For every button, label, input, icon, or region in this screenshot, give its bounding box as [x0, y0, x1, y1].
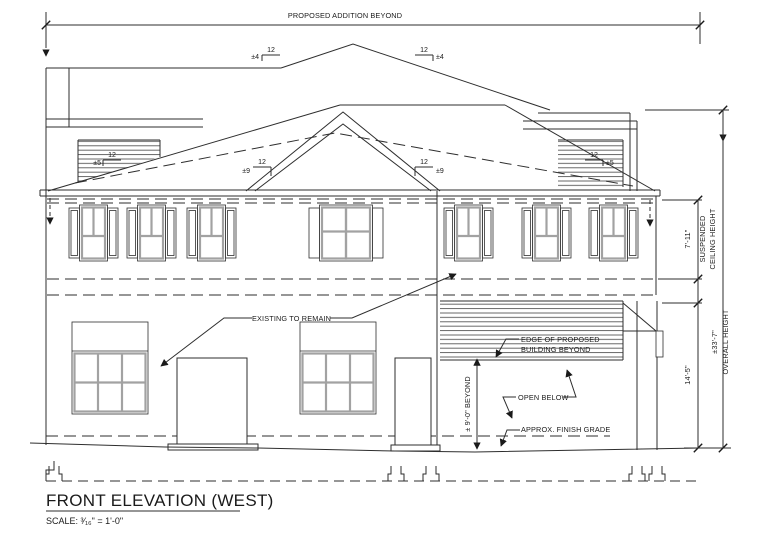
window-second-floor-4	[444, 205, 493, 261]
slope-rise-label: 12	[258, 159, 266, 166]
proposed-addition-label: PROPOSED ADDITION BEYOND	[288, 11, 402, 20]
window-second-floor-2	[127, 205, 176, 261]
existing-to-remain-label: EXISTING TO REMAIN	[252, 314, 331, 323]
slope-indicator-addition-left: 12 ±4	[251, 47, 280, 61]
eave-band	[40, 190, 660, 196]
grade-and-footings	[30, 443, 702, 481]
front-elevation-drawing: 12 ±4 12 ±4 12 ±9 12 ±9 12 ±5 12 ±5 PROP…	[0, 0, 770, 539]
approx-finish-grade-label: APPROX. FINISH GRADE	[521, 425, 610, 434]
proposed-addition-roof	[46, 44, 550, 110]
slope-indicator-gable-left: 12 ±9	[242, 159, 271, 176]
slope-pitch-label: ±5	[93, 160, 101, 167]
window-second-floor-5	[522, 205, 571, 261]
suspended-ceiling-dimension: 7'-11"	[683, 229, 692, 248]
beyond-height-label: ± 9'-0" BEYOND	[463, 376, 472, 432]
footing-center-door-left	[388, 466, 404, 481]
center-door	[391, 358, 440, 451]
edge-of-proposed-label-line1: EDGE OF PROPOSED	[521, 335, 600, 344]
open-below-label: OPEN BELOW	[518, 393, 569, 402]
slope-pitch-label: ±4	[251, 54, 259, 61]
suspended-ceiling-label-line1: SUSPENDED	[698, 216, 707, 263]
slope-pitch-label: ±4	[436, 54, 444, 61]
right-dimension-lines	[645, 106, 731, 452]
corner-board	[656, 331, 663, 357]
footing-right-post-right	[649, 466, 665, 481]
overall-height-dimension: ±33'-7"	[710, 330, 719, 354]
slope-rise-label: 12	[108, 152, 116, 159]
slope-indicator-addition-right: 12 ±4	[415, 47, 444, 61]
slope-rise-label: 12	[420, 159, 428, 166]
slope-indicator-gable-right: 12 ±9	[415, 159, 444, 176]
window-first-floor-left	[72, 322, 148, 414]
window-second-floor-1	[69, 205, 118, 261]
elevation-sheet: 12 ±4 12 ±4 12 ±9 12 ±9 12 ±5 12 ±5 PROP…	[0, 0, 770, 539]
window-first-floor-center	[300, 322, 376, 414]
window-second-floor-center-double	[309, 205, 383, 261]
footing-center-door-right	[423, 466, 439, 481]
footing-right-post-left	[629, 466, 645, 481]
overall-height-label: OVERALL HEIGHT	[721, 309, 730, 374]
slope-rise-label: 12	[590, 152, 598, 159]
edge-of-proposed-label-line2: BUILDING BEYOND	[521, 345, 591, 354]
slope-pitch-label: ±5	[606, 160, 614, 167]
window-second-floor-3	[187, 205, 236, 261]
window-second-floor-6	[589, 205, 638, 261]
suspended-ceiling-label-line2: CEILING HEIGHT	[708, 208, 717, 269]
slope-rise-label: 12	[267, 47, 275, 54]
drawing-title: FRONT ELEVATION (WEST)	[46, 491, 274, 510]
right-corner-post	[623, 301, 663, 450]
first-floor-dimension: 14'-5"	[683, 365, 692, 385]
slope-rise-label: 12	[420, 47, 428, 54]
slope-pitch-label: ±9	[436, 168, 444, 175]
left-door	[168, 358, 258, 450]
scale-note: SCALE: ³⁄₁₆" = 1'-0"	[46, 516, 123, 526]
slope-pitch-label: ±9	[242, 168, 250, 175]
